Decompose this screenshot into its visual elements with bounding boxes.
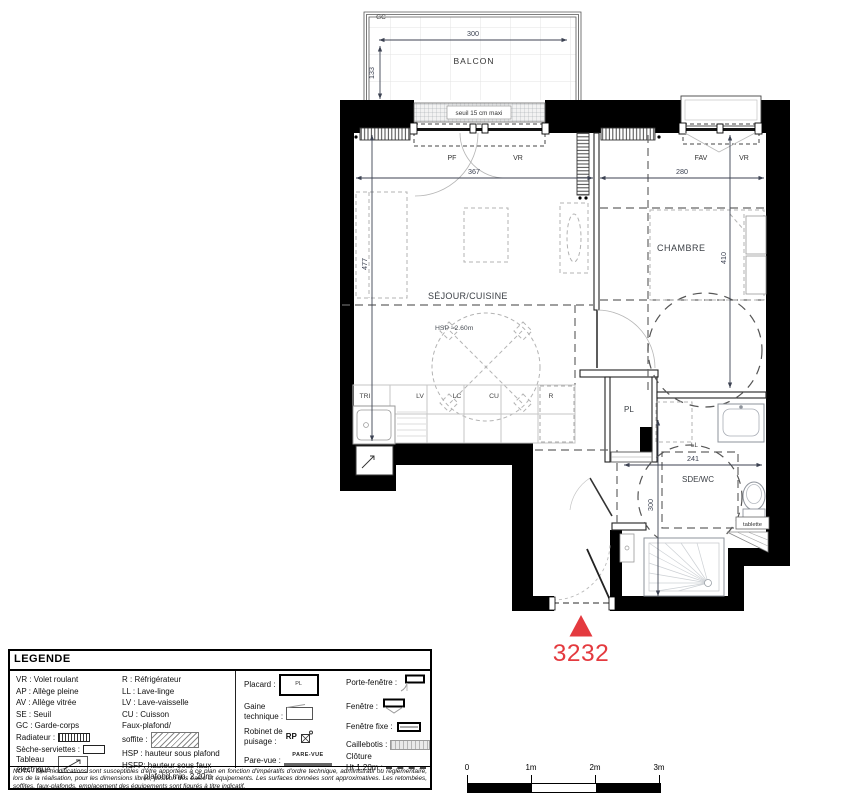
towel-dryer-symbol-icon <box>83 745 105 754</box>
legend-cu: CU : Cuisson <box>122 709 169 721</box>
legend-faux-2: soffite : <box>122 734 148 746</box>
legend-ap: AP : Allège pleine <box>16 686 79 698</box>
kitchen-sink <box>353 406 395 444</box>
partition-shower <box>612 523 646 530</box>
soffite-symbol-icon <box>151 732 199 748</box>
ll-label: LL <box>691 442 698 449</box>
sofa <box>356 192 407 298</box>
placard-symbol-icon: PL <box>279 674 319 696</box>
legend-hsp: HSP : hauteur sous plafond <box>122 748 220 760</box>
turning-circle-chambre <box>648 293 762 407</box>
legend-placard: Placard : <box>244 679 276 691</box>
legend-gaine-2: technique : <box>244 712 283 721</box>
caillebotis-symbol-icon <box>390 740 430 750</box>
scale-tick <box>467 775 468 783</box>
fenetre-fixe-symbol-icon <box>396 721 422 733</box>
kitchen-lc-label: LC <box>453 393 462 400</box>
coffee-table <box>464 208 508 262</box>
shower-drain <box>705 580 712 587</box>
placard-symbol-label: PL <box>295 679 302 691</box>
floor-plan-page: { "colors": { "accent_red": "#e43a3f", "… <box>0 0 848 800</box>
legend-box: LEGENDE VR : Volet roulant AP : Allège p… <box>8 649 432 790</box>
door-swing-arcs <box>415 133 505 196</box>
entry-arrow-icon <box>570 615 593 637</box>
chair <box>514 394 532 412</box>
legend-robinet-2: puisage : <box>244 737 276 746</box>
kitchen-r-label: R <box>549 393 554 400</box>
partition-pl-left <box>605 377 610 462</box>
legend-vr: VR : Volet roulant <box>16 674 78 686</box>
radiator-chambre <box>601 128 655 140</box>
balcony: GC 300 133 BALCON <box>364 12 581 100</box>
legend-tableau-1: Tableau <box>16 755 44 764</box>
sde-fixtures: tablette <box>611 404 769 596</box>
sde-door-leaf <box>590 478 612 516</box>
radiators <box>354 128 660 200</box>
seuil-label: seuil 15 cm maxi <box>456 110 503 117</box>
window-sill <box>681 96 761 126</box>
legend-parevue: Pare-vue : <box>244 755 281 767</box>
partition-chambre-sde <box>657 392 766 398</box>
fenetre-symbol-icon <box>381 698 407 715</box>
legend-av: AV : Allège vitrée <box>16 697 76 709</box>
legend-gaine-1: Gaine <box>244 702 265 711</box>
radiator-sejour <box>360 128 410 140</box>
basin-tap <box>739 405 743 409</box>
hsp-label: HSP ≈2.60m <box>435 325 474 332</box>
scale-tick <box>659 775 660 783</box>
sde-label: SDE/WC <box>682 475 714 484</box>
legend-r: R : Réfrigérateur <box>122 674 181 686</box>
pare-vue-symbol-label: PARE-VUE <box>284 752 332 758</box>
legend-radiateur: Radiateur : <box>16 732 55 744</box>
electrical-panel <box>356 446 393 475</box>
legend-se: SE : Seuil <box>16 709 51 721</box>
pl-label: PL <box>624 405 634 414</box>
scale-0-label: 0 <box>465 763 469 772</box>
furniture <box>356 192 764 442</box>
kitchen-counter: TRI LV LC CU R <box>353 385 575 444</box>
balcony-depth-dim: 133 <box>367 67 376 79</box>
fav-label: FAV <box>695 155 708 162</box>
gc-label: GC <box>376 14 386 21</box>
radiator-symbol-icon <box>58 733 90 742</box>
tablette-label: tablette <box>743 522 762 528</box>
legend-fenetre: Fenêtre : <box>346 701 378 713</box>
gaine-technique-symbol-icon <box>286 703 314 721</box>
legend-col1: VR : Volet roulant AP : Allège pleine AV… <box>16 674 120 774</box>
window-fav: FAV VR <box>679 96 762 162</box>
soffite-sde-rect <box>662 452 738 528</box>
legend-faux-1: Faux-plafond/ <box>122 720 171 732</box>
dimension-lines <box>356 135 764 596</box>
entry-door-leaf <box>587 549 610 600</box>
exterior-walls <box>340 100 790 611</box>
technical-duct <box>620 534 634 562</box>
dim-sde-width: 241 <box>687 454 699 463</box>
scale-tick <box>595 775 596 783</box>
vr-left-label: VR <box>513 155 523 162</box>
chair <box>514 322 532 340</box>
partition-pl-top <box>580 370 658 377</box>
legend-seche: Sèche-serviettes : <box>16 744 80 756</box>
partition-sejour-chambre <box>594 133 599 310</box>
kitchen-lv-label: LV <box>416 393 424 400</box>
legend-divider <box>235 671 236 768</box>
legend-col3: Placard :PL Gaine technique : Robinet de… <box>244 674 344 776</box>
vr-right-label: VR <box>739 155 749 162</box>
scale-3m-label: 3m <box>653 763 664 772</box>
dim-sde-depth: 300 <box>646 499 655 511</box>
window-frame <box>414 128 545 131</box>
legend-title: LEGENDE <box>10 651 430 671</box>
kitchen-cu-label: CU <box>489 393 499 400</box>
dim-sejour-width: 367 <box>468 167 480 176</box>
chambre-door-arc <box>597 310 655 368</box>
dim-chambre-width: 280 <box>676 167 688 176</box>
scale-tick <box>531 775 532 783</box>
sejour-label: SÉJOUR/CUISINE <box>428 291 508 301</box>
balcony-width-dim: 300 <box>467 29 479 38</box>
legend-gc: GC : Garde-corps <box>16 720 79 732</box>
lave-linge-outline <box>656 402 692 442</box>
dishwasher-lines <box>397 412 426 436</box>
nightstands <box>746 216 766 294</box>
rp-symbol-label: RP <box>286 731 297 743</box>
soffite-lines <box>342 135 764 528</box>
legend-cloture-1: Clôture <box>346 751 372 763</box>
window-pf: seuil 15 cm maxi PF VR <box>410 103 549 196</box>
scale-2m-label: 2m <box>589 763 600 772</box>
casement-lines <box>685 133 755 152</box>
dim-chambre-depth: 410 <box>719 252 728 264</box>
scale-bar: 0 1m 2m 3m <box>460 763 670 795</box>
scale-bar-strip <box>467 783 661 793</box>
legend-fenetre-fixe: Fenêtre fixe : <box>346 721 393 733</box>
legend-robinet-1: Robinet de <box>244 727 283 736</box>
balcony-label: BALCON <box>454 56 495 66</box>
legend-lv: LV : Lave-vaisselle <box>122 697 189 709</box>
legend-ll: LL : Lave-linge <box>122 686 174 698</box>
kitchen-tri-label: TRI <box>360 393 371 400</box>
robinet-puisage-symbol-icon <box>300 730 313 744</box>
legend-caillebotis: Caillebotis : <box>346 739 387 751</box>
legend-col4: Porte-fenêtre : Fenêtre : Fenêtre fixe :… <box>346 674 430 774</box>
lot-marker: 3232 <box>553 615 610 667</box>
nota-text: NOTA : Des modifications sont susceptibl… <box>10 766 430 788</box>
lot-number: 3232 <box>553 640 610 667</box>
pf-label: PF <box>448 155 457 162</box>
entry-door-arc <box>553 543 610 600</box>
chambre-label: CHAMBRE <box>657 243 706 253</box>
volet-roulant-box <box>414 124 545 146</box>
sde-door-arc <box>570 478 590 510</box>
porte-fenetre-symbol-icon <box>400 674 426 692</box>
legend-porte-fenetre: Porte-fenêtre : <box>346 677 397 689</box>
scale-1m-label: 1m <box>525 763 536 772</box>
dim-sejour-depth: 477 <box>360 258 369 270</box>
radiator-vertical <box>577 133 589 195</box>
